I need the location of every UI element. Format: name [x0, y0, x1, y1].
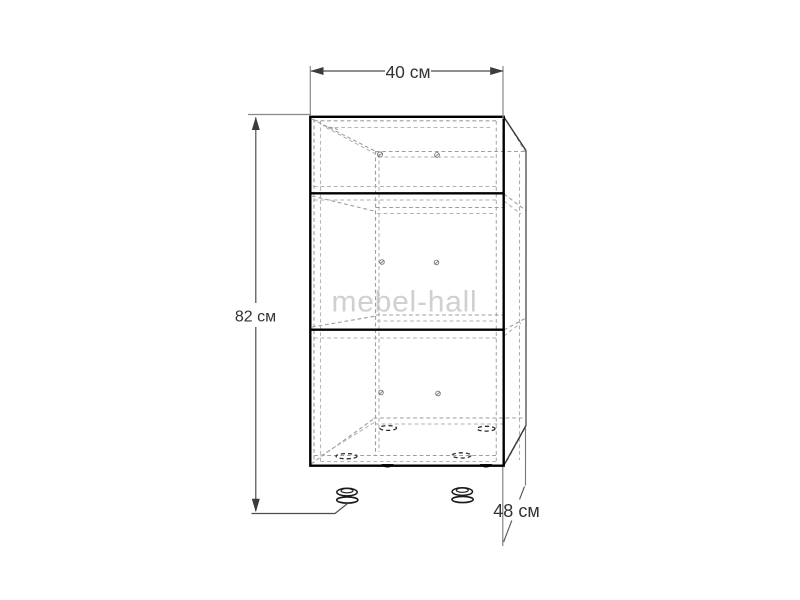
svg-text:40 см: 40 см: [385, 62, 430, 82]
svg-text:48 см: 48 см: [493, 501, 539, 521]
svg-text:mebel-hall: mebel-hall: [332, 286, 478, 319]
svg-text:82 см: 82 см: [235, 309, 276, 326]
